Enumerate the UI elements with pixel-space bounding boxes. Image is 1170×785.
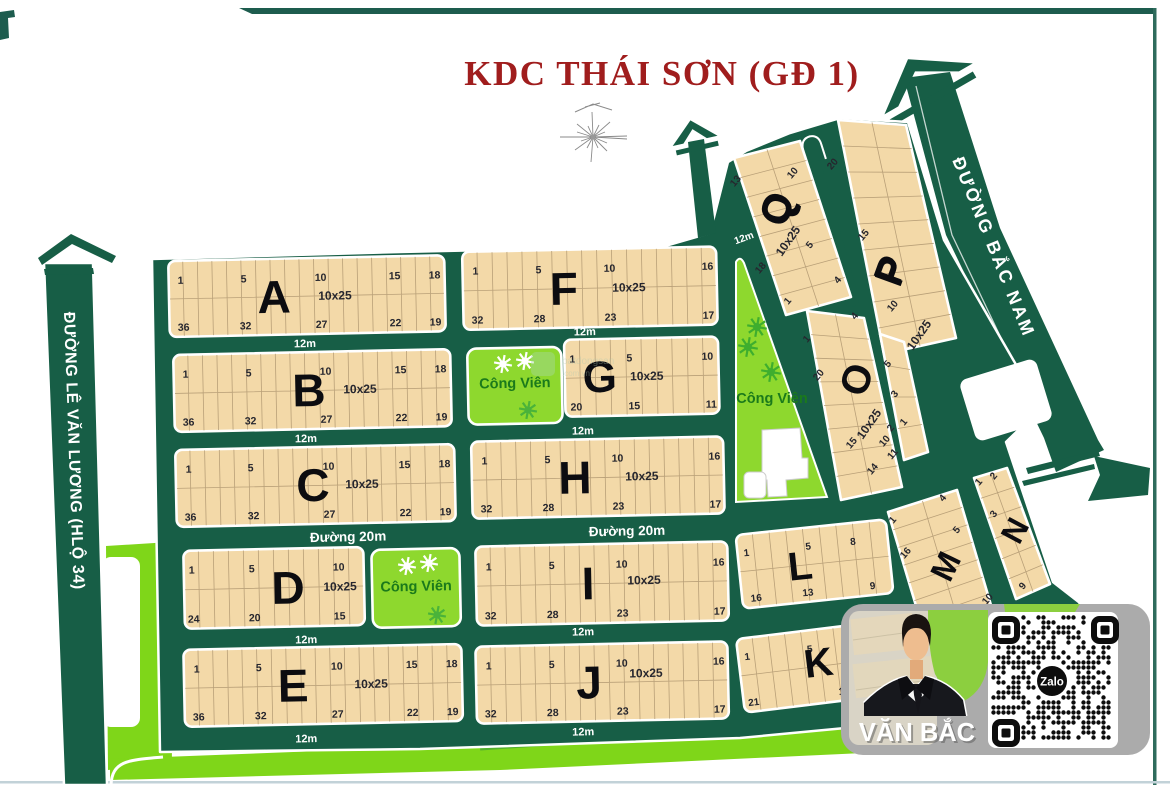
svg-text:17: 17 [709, 499, 721, 511]
svg-text:32: 32 [481, 503, 493, 515]
svg-text:32: 32 [472, 314, 484, 326]
svg-text:22: 22 [400, 507, 412, 519]
svg-text:5: 5 [249, 563, 255, 575]
svg-text:17: 17 [703, 310, 715, 322]
svg-text:Đường 20m: Đường 20m [310, 529, 387, 546]
svg-text:10: 10 [315, 272, 327, 284]
svg-text:I: I [581, 557, 595, 609]
svg-text:16: 16 [708, 451, 720, 463]
svg-text:18: 18 [446, 658, 458, 670]
svg-text:20: 20 [570, 401, 582, 413]
svg-text:10x25: 10x25 [625, 469, 659, 484]
svg-text:12m: 12m [574, 326, 596, 338]
svg-text:32: 32 [255, 710, 267, 722]
svg-text:21: 21 [748, 697, 761, 709]
svg-text:10: 10 [331, 660, 343, 672]
svg-text:19: 19 [436, 411, 448, 423]
svg-text:28: 28 [547, 707, 559, 719]
svg-text:12m: 12m [572, 626, 594, 638]
svg-text:K: K [802, 640, 836, 687]
svg-text:Công Viên: Công Viên [736, 391, 807, 407]
svg-text:18: 18 [439, 458, 451, 470]
svg-text:A: A [257, 270, 291, 323]
svg-text:5: 5 [626, 352, 632, 364]
svg-text:12m: 12m [567, 236, 589, 248]
svg-text:16: 16 [750, 593, 763, 605]
svg-text:5: 5 [549, 659, 555, 671]
svg-text:15: 15 [334, 610, 346, 622]
svg-text:10x25: 10x25 [354, 677, 388, 692]
svg-text:28: 28 [547, 609, 559, 621]
svg-text:36: 36 [193, 711, 205, 723]
svg-text:5: 5 [248, 462, 254, 474]
svg-text:D: D [271, 561, 305, 614]
svg-text:10x25: 10x25 [629, 666, 663, 681]
svg-text:15: 15 [399, 459, 411, 471]
svg-text:Công Viên: Công Viên [380, 578, 452, 595]
svg-text:23: 23 [613, 501, 625, 513]
svg-text:28: 28 [543, 502, 555, 514]
svg-text:L: L [786, 543, 815, 589]
svg-text:36: 36 [178, 322, 190, 334]
svg-text:19: 19 [440, 506, 452, 518]
svg-text:28: 28 [534, 313, 546, 325]
svg-text:H: H [558, 451, 592, 504]
svg-text:E: E [277, 659, 309, 712]
svg-text:F: F [549, 262, 578, 315]
svg-text:1: 1 [486, 660, 492, 672]
svg-text:10x25: 10x25 [343, 382, 377, 397]
svg-text:12m: 12m [294, 338, 316, 350]
svg-text:12m: 12m [572, 726, 594, 738]
svg-text:36: 36 [183, 417, 195, 429]
svg-text:1: 1 [189, 565, 195, 577]
svg-text:10: 10 [616, 558, 628, 570]
svg-text:23: 23 [617, 705, 629, 717]
svg-text:22: 22 [407, 707, 419, 719]
svg-text:1: 1 [486, 561, 492, 573]
svg-text:10x25: 10x25 [323, 579, 357, 594]
svg-text:Đường 20m: Đường 20m [589, 523, 666, 540]
svg-text:12m: 12m [295, 733, 317, 745]
svg-text:19: 19 [447, 706, 459, 718]
svg-text:10x25: 10x25 [612, 280, 646, 295]
svg-text:32: 32 [240, 320, 252, 332]
svg-text:17: 17 [714, 605, 726, 617]
svg-text:Zalo: Zalo [1040, 677, 1064, 689]
svg-text:11: 11 [706, 399, 718, 411]
svg-text:16: 16 [702, 261, 714, 273]
svg-text:15: 15 [406, 659, 418, 671]
svg-text:10: 10 [616, 658, 628, 670]
svg-text:1: 1 [481, 455, 487, 467]
svg-text:1: 1 [472, 266, 478, 278]
svg-text:17: 17 [714, 703, 726, 715]
svg-text:32: 32 [485, 610, 497, 622]
svg-text:20: 20 [249, 612, 261, 624]
svg-text:10: 10 [604, 263, 616, 275]
svg-text:10x25: 10x25 [627, 573, 661, 588]
svg-text:12m: 12m [295, 634, 317, 646]
svg-text:10: 10 [333, 561, 345, 573]
svg-text:KDC THÁI SƠN (GĐ 1): KDC THÁI SƠN (GĐ 1) [464, 54, 859, 93]
svg-text:19: 19 [430, 316, 442, 328]
svg-text:15: 15 [389, 270, 401, 282]
svg-text:16: 16 [713, 556, 725, 568]
svg-text:10x25: 10x25 [345, 477, 379, 492]
svg-text:10x25: 10x25 [318, 288, 352, 303]
svg-text:J: J [576, 656, 603, 709]
svg-text:5: 5 [246, 367, 252, 379]
svg-text:18: 18 [429, 269, 441, 281]
svg-text:12m: 12m [288, 244, 310, 256]
svg-text:batdongsan: batdongsan [562, 356, 614, 367]
svg-text:27: 27 [332, 708, 344, 720]
svg-text:24: 24 [188, 613, 200, 625]
svg-text:1: 1 [194, 663, 200, 675]
svg-text:5: 5 [535, 264, 541, 276]
svg-text:12m: 12m [295, 433, 317, 445]
svg-text:13: 13 [802, 587, 815, 599]
svg-text:VĂN BẮC: VĂN BẮC [859, 717, 975, 747]
svg-text:Công Viên: Công Viên [479, 375, 551, 392]
svg-text:10: 10 [612, 453, 624, 465]
svg-text:23: 23 [605, 312, 617, 324]
svg-text:27: 27 [316, 319, 328, 331]
svg-text:22: 22 [390, 317, 402, 329]
svg-text:32: 32 [485, 708, 497, 720]
svg-text:5: 5 [256, 662, 262, 674]
svg-text:C: C [296, 459, 330, 512]
svg-text:22: 22 [396, 412, 408, 424]
svg-text:1: 1 [183, 369, 189, 381]
svg-text:5: 5 [549, 560, 555, 572]
svg-text:1: 1 [178, 275, 184, 287]
svg-text:10x25: 10x25 [630, 369, 664, 384]
svg-text:32: 32 [248, 510, 260, 522]
svg-text:32: 32 [245, 415, 257, 427]
svg-text:18: 18 [435, 363, 447, 375]
svg-text:.com.vn: .com.vn [562, 369, 590, 378]
svg-text:15: 15 [395, 364, 407, 376]
svg-text:16: 16 [713, 655, 725, 667]
svg-text:5: 5 [544, 454, 550, 466]
svg-text:10: 10 [701, 351, 713, 363]
svg-text:36: 36 [185, 512, 197, 524]
svg-text:5: 5 [241, 273, 247, 285]
svg-text:23: 23 [617, 607, 629, 619]
svg-text:B: B [292, 364, 326, 417]
svg-text:15: 15 [628, 400, 640, 412]
svg-text:12m: 12m [572, 425, 594, 437]
svg-text:1: 1 [186, 464, 192, 476]
